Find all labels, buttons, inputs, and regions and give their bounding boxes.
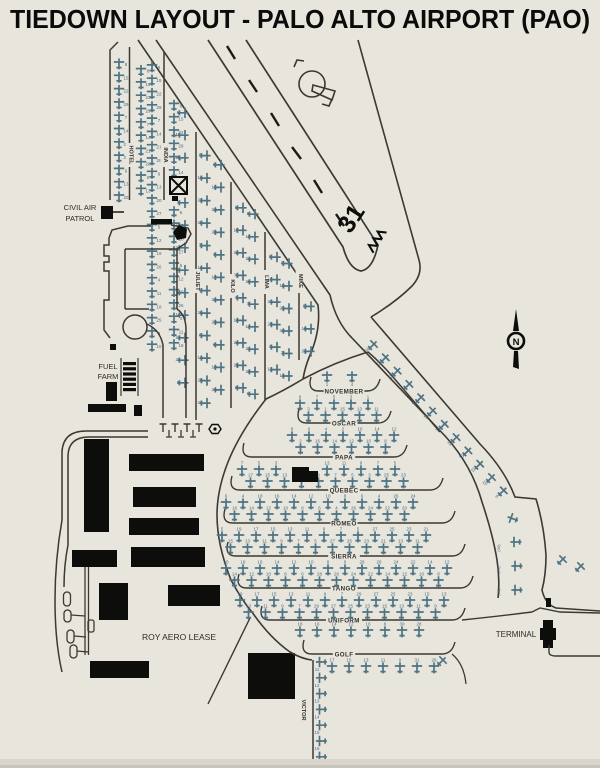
svg-text:21: 21: [381, 539, 386, 544]
svg-text:20: 20: [176, 335, 181, 340]
svg-text:31: 31: [415, 658, 420, 663]
svg-text:10: 10: [366, 439, 371, 444]
svg-text:15: 15: [271, 527, 276, 532]
svg-text:20: 20: [124, 195, 129, 200]
svg-text:27: 27: [198, 400, 203, 405]
svg-text:JULIET: JULIET: [194, 271, 200, 291]
svg-text:29: 29: [212, 229, 217, 234]
svg-text:10: 10: [266, 572, 271, 577]
svg-text:22: 22: [411, 560, 416, 565]
svg-text:13: 13: [157, 185, 162, 190]
svg-text:28: 28: [417, 622, 422, 627]
svg-text:14: 14: [332, 622, 337, 627]
svg-text:16: 16: [315, 746, 320, 751]
svg-text:22: 22: [198, 198, 203, 203]
svg-text:10: 10: [157, 344, 162, 349]
svg-text:16: 16: [315, 439, 320, 444]
svg-text:19: 19: [157, 251, 162, 256]
svg-text:14: 14: [268, 367, 273, 372]
svg-text:25: 25: [390, 527, 395, 532]
svg-text:16: 16: [232, 506, 237, 511]
svg-text:19: 19: [238, 592, 243, 597]
svg-text:28: 28: [234, 362, 239, 367]
svg-text:INDIA: INDIA: [162, 147, 168, 162]
svg-text:27: 27: [179, 250, 184, 255]
svg-text:11: 11: [381, 658, 386, 663]
svg-text:13: 13: [246, 604, 251, 609]
svg-text:29: 29: [157, 105, 162, 110]
svg-text:15: 15: [179, 117, 184, 122]
svg-text:26: 26: [394, 494, 399, 499]
svg-text:15: 15: [234, 227, 239, 232]
svg-text:21: 21: [424, 527, 429, 532]
svg-text:28: 28: [317, 572, 322, 577]
svg-text:11: 11: [306, 592, 311, 597]
svg-text:14: 14: [212, 274, 217, 279]
svg-text:21: 21: [234, 340, 239, 345]
svg-text:11: 11: [305, 527, 310, 532]
svg-text:27: 27: [374, 592, 379, 597]
svg-text:17: 17: [254, 527, 259, 532]
svg-text:29: 29: [432, 658, 437, 663]
svg-text:18: 18: [258, 494, 263, 499]
svg-text:FARM: FARM: [98, 372, 119, 381]
svg-text:ROMEO: ROMEO: [331, 521, 356, 528]
svg-text:20: 20: [402, 506, 407, 511]
svg-text:15: 15: [176, 132, 181, 137]
svg-text:15: 15: [198, 175, 203, 180]
svg-text:13: 13: [357, 407, 362, 412]
svg-text:11: 11: [415, 539, 420, 544]
svg-text:25: 25: [384, 473, 389, 478]
svg-text:11: 11: [374, 407, 379, 412]
svg-text:29: 29: [314, 604, 319, 609]
svg-text:22: 22: [246, 256, 251, 261]
svg-text:14: 14: [246, 324, 251, 329]
svg-text:12: 12: [292, 560, 297, 565]
svg-text:18: 18: [157, 304, 162, 309]
svg-text:11: 11: [263, 604, 268, 609]
svg-text:22: 22: [302, 348, 307, 353]
svg-text:16: 16: [358, 427, 363, 432]
svg-text:24: 24: [394, 560, 399, 565]
svg-text:26: 26: [351, 506, 356, 511]
svg-text:N: N: [513, 337, 520, 348]
svg-text:12: 12: [157, 238, 162, 243]
svg-text:12: 12: [349, 622, 354, 627]
svg-text:28: 28: [212, 319, 217, 324]
svg-text:28: 28: [360, 560, 365, 565]
svg-text:12: 12: [349, 439, 354, 444]
svg-text:17: 17: [248, 473, 253, 478]
svg-text:15: 15: [265, 473, 270, 478]
svg-text:10: 10: [309, 560, 314, 565]
svg-text:VICTOR: VICTOR: [300, 699, 306, 720]
svg-text:12: 12: [445, 560, 450, 565]
svg-text:26: 26: [334, 572, 339, 577]
svg-text:(30): (30): [496, 544, 501, 552]
svg-text:14: 14: [249, 506, 254, 511]
svg-text:29: 29: [198, 220, 203, 225]
svg-text:14: 14: [232, 572, 237, 577]
svg-text:18: 18: [241, 560, 246, 565]
svg-text:25: 25: [347, 539, 352, 544]
svg-text:22: 22: [268, 299, 273, 304]
svg-text:26: 26: [179, 303, 184, 308]
svg-text:TANGO: TANGO: [332, 586, 356, 593]
svg-text:11: 11: [342, 461, 347, 466]
svg-text:13: 13: [198, 355, 203, 360]
svg-text:NOVEMBER: NOVEMBER: [325, 389, 364, 396]
svg-text:16: 16: [275, 494, 280, 499]
svg-text:14: 14: [234, 317, 239, 322]
svg-text:10: 10: [419, 572, 424, 577]
svg-text:13: 13: [315, 699, 320, 704]
svg-text:15: 15: [157, 78, 162, 83]
svg-text:16: 16: [315, 622, 320, 627]
svg-text:14: 14: [280, 373, 285, 378]
svg-text:13: 13: [398, 539, 403, 544]
svg-text:27: 27: [331, 604, 336, 609]
svg-text:11: 11: [416, 604, 421, 609]
svg-text:23: 23: [364, 539, 369, 544]
svg-text:22: 22: [280, 306, 285, 311]
svg-text:12: 12: [179, 276, 184, 281]
svg-text:14: 14: [124, 129, 129, 134]
svg-text:13: 13: [124, 182, 129, 187]
svg-text:23: 23: [408, 592, 413, 597]
svg-text:14: 14: [275, 560, 280, 565]
svg-text:29: 29: [357, 592, 362, 597]
svg-text:14: 14: [385, 572, 390, 577]
svg-text:15: 15: [124, 75, 129, 80]
svg-text:14: 14: [332, 439, 337, 444]
svg-text:CIVIL AIR: CIVIL AIR: [64, 203, 97, 212]
svg-text:14: 14: [292, 494, 297, 499]
svg-text:22: 22: [368, 572, 373, 577]
svg-text:13: 13: [282, 473, 287, 478]
svg-text:(29): (29): [496, 566, 501, 574]
svg-text:ROY AERO LEASE: ROY AERO LEASE: [142, 632, 216, 642]
svg-text:29: 29: [280, 328, 285, 333]
svg-text:21: 21: [212, 297, 217, 302]
svg-text:29: 29: [124, 102, 129, 107]
svg-text:12: 12: [402, 572, 407, 577]
svg-text:15: 15: [347, 658, 352, 663]
svg-text:12: 12: [315, 683, 320, 688]
svg-text:TERMINAL: TERMINAL: [496, 630, 537, 639]
svg-text:30: 30: [400, 622, 405, 627]
svg-text:24: 24: [368, 506, 373, 511]
svg-text:15: 15: [340, 407, 345, 412]
svg-text:27: 27: [157, 211, 162, 216]
svg-text:20: 20: [198, 378, 203, 383]
svg-text:10: 10: [326, 494, 331, 499]
svg-text:(28): (28): [496, 588, 501, 596]
svg-text:13: 13: [176, 312, 181, 317]
svg-text:27: 27: [330, 539, 335, 544]
svg-text:29: 29: [246, 279, 251, 284]
svg-text:27: 27: [176, 357, 181, 362]
svg-text:13: 13: [289, 592, 294, 597]
svg-text:28: 28: [246, 369, 251, 374]
svg-text:22: 22: [124, 89, 129, 94]
svg-text:27: 27: [373, 527, 378, 532]
svg-text:17: 17: [330, 658, 335, 663]
svg-text:20: 20: [212, 387, 217, 392]
svg-text:23: 23: [401, 473, 406, 478]
svg-text:18: 18: [179, 343, 184, 348]
svg-text:19: 19: [237, 527, 242, 532]
svg-text:29: 29: [179, 143, 184, 148]
svg-text:24: 24: [411, 494, 416, 499]
svg-text:PATROL: PATROL: [66, 214, 95, 223]
svg-text:22: 22: [385, 506, 390, 511]
svg-text:15: 15: [246, 234, 251, 239]
svg-text:12: 12: [249, 572, 254, 577]
svg-text:28: 28: [198, 310, 203, 315]
svg-text:25: 25: [348, 604, 353, 609]
svg-text:12: 12: [266, 506, 271, 511]
svg-text:17: 17: [255, 592, 260, 597]
svg-text:13: 13: [364, 658, 369, 663]
svg-text:11: 11: [157, 291, 162, 296]
svg-text:14: 14: [375, 427, 380, 432]
svg-text:FUEL: FUEL: [98, 362, 117, 371]
svg-text:11: 11: [315, 667, 320, 672]
svg-text:24: 24: [351, 572, 356, 577]
svg-text:29: 29: [268, 322, 273, 327]
svg-text:13: 13: [212, 364, 217, 369]
svg-text:20: 20: [157, 198, 162, 203]
svg-text:15: 15: [425, 592, 430, 597]
svg-text:26: 26: [157, 264, 162, 269]
svg-text:15: 15: [272, 592, 277, 597]
svg-text:12: 12: [309, 494, 314, 499]
svg-text:25: 25: [391, 592, 396, 597]
svg-text:12: 12: [392, 427, 397, 432]
svg-text:14: 14: [179, 170, 184, 175]
svg-text:15: 15: [280, 283, 285, 288]
svg-text:23: 23: [407, 527, 412, 532]
svg-text:10: 10: [283, 506, 288, 511]
svg-text:11: 11: [262, 539, 267, 544]
svg-text:MIKE: MIKE: [297, 274, 303, 288]
svg-text:25: 25: [157, 318, 162, 323]
svg-text:26: 26: [377, 560, 382, 565]
svg-text:15: 15: [315, 730, 320, 735]
svg-text:15: 15: [212, 184, 217, 189]
svg-text:15: 15: [382, 604, 387, 609]
svg-text:14: 14: [428, 560, 433, 565]
svg-text:13: 13: [245, 539, 250, 544]
svg-text:TIEDOWN LAYOUT - PALO ALTO AIR: TIEDOWN LAYOUT - PALO ALTO AIRPORT (PAO): [10, 4, 590, 34]
svg-text:23: 23: [365, 604, 370, 609]
svg-text:20: 20: [224, 560, 229, 565]
svg-text:16: 16: [258, 560, 263, 565]
svg-text:22: 22: [212, 207, 217, 212]
svg-text:18: 18: [298, 622, 303, 627]
svg-text:13: 13: [325, 461, 330, 466]
svg-text:13: 13: [399, 604, 404, 609]
svg-text:13: 13: [442, 592, 447, 597]
svg-text:21: 21: [246, 346, 251, 351]
svg-text:15: 15: [302, 326, 307, 331]
svg-text:LIMA: LIMA: [263, 275, 269, 289]
svg-text:HOTEL: HOTEL: [128, 146, 134, 166]
svg-text:KILO: KILO: [229, 279, 235, 293]
svg-text:13: 13: [288, 527, 293, 532]
svg-text:22: 22: [157, 92, 162, 97]
svg-text:22: 22: [176, 155, 181, 160]
svg-text:22: 22: [234, 250, 239, 255]
svg-text:11: 11: [179, 330, 184, 335]
svg-text:14: 14: [315, 714, 320, 719]
svg-text:10: 10: [366, 622, 371, 627]
svg-text:14: 14: [157, 131, 162, 136]
svg-text:15: 15: [228, 539, 233, 544]
